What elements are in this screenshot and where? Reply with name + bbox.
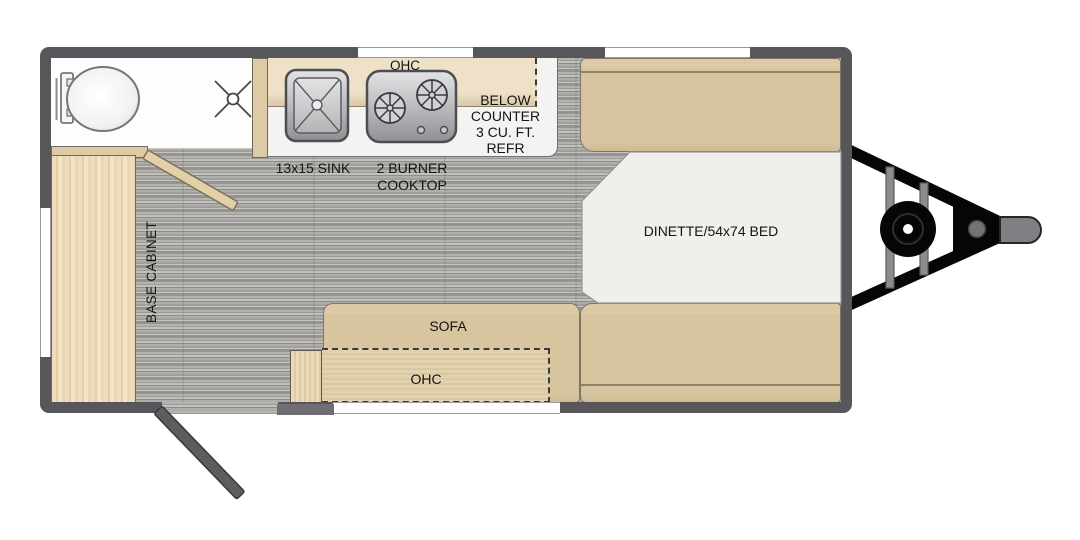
- safety-chain-loop-icon: [969, 221, 986, 238]
- dinette-label: DINETTE/54x74 BED: [591, 223, 831, 239]
- refrigerator-label-line: 3 CU. FT.: [453, 124, 558, 140]
- refrigerator-label-line: REFR: [453, 140, 558, 156]
- refrigerator-label-line: COUNTER: [453, 108, 558, 124]
- base-cabinet-label: BASE CABINET: [144, 207, 160, 337]
- entry-step-threshold: [277, 404, 334, 415]
- sofa-label: SOFA: [388, 318, 508, 334]
- cooktop-label: 2 BURNER COOKTOP: [352, 160, 472, 194]
- window-bottom: [333, 402, 560, 414]
- tongue-jack-wheel-icon: [880, 201, 936, 257]
- floorplan-canvas: OHC BELOW COUNTER 3 CU. FT. REFR 13x15 S…: [0, 0, 1080, 540]
- kitchen-ohc-label: OHC: [375, 58, 435, 74]
- entry-door-opening: [162, 402, 278, 414]
- cooktop-label-line: COOKTOP: [352, 177, 472, 194]
- hitch-coupler-icon: [1000, 217, 1041, 243]
- a-frame-tongue-hitch-icon: [846, 149, 1041, 306]
- window-top-right: [605, 47, 750, 58]
- refrigerator-label: BELOW COUNTER 3 CU. FT. REFR: [453, 92, 558, 156]
- cooktop-label-line: 2 BURNER: [352, 160, 472, 177]
- window-top-left: [358, 47, 473, 58]
- sofa-ohc-label: OHC: [366, 371, 486, 387]
- window-left: [40, 208, 51, 357]
- refrigerator-label-line: BELOW: [453, 92, 558, 108]
